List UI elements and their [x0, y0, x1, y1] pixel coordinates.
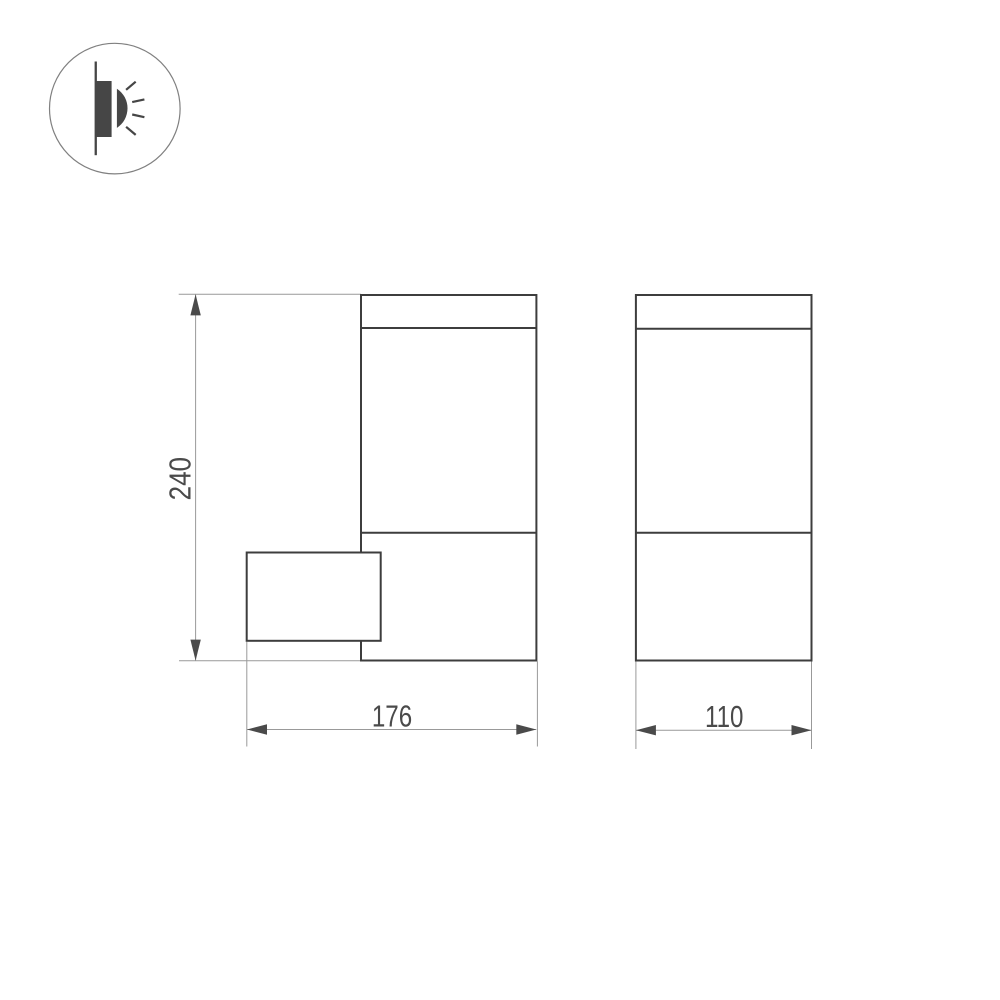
svg-text:176: 176 — [372, 699, 412, 734]
svg-text:240: 240 — [163, 457, 198, 500]
svg-text:110: 110 — [705, 699, 744, 734]
